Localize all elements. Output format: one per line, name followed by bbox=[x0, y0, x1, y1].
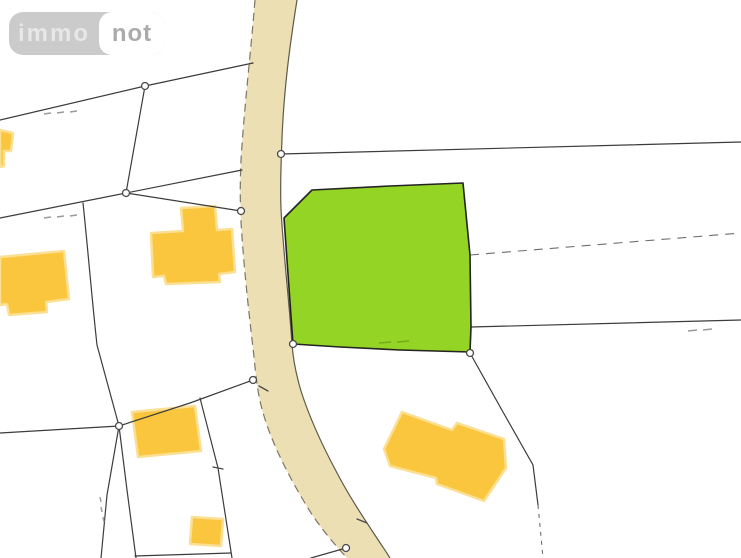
boundary-line bbox=[135, 553, 231, 556]
cadastral-map bbox=[0, 0, 741, 558]
survey-marker bbox=[116, 423, 123, 430]
boundary-line bbox=[0, 63, 253, 120]
boundary-line bbox=[101, 426, 119, 558]
survey-marker bbox=[142, 83, 149, 90]
highlighted-parcel bbox=[284, 183, 471, 352]
logo-immo-text: immo bbox=[9, 12, 99, 55]
logo-not-badge: not bbox=[99, 12, 165, 55]
boundary-line bbox=[126, 170, 242, 193]
building-bottom-right bbox=[384, 412, 506, 501]
survey-marker bbox=[343, 545, 350, 552]
building-left-edge-top bbox=[0, 130, 13, 167]
boundary-line bbox=[0, 426, 119, 433]
building-center-left bbox=[151, 206, 235, 284]
dashed-boundary-line bbox=[470, 233, 741, 255]
immonot-logo: immo not bbox=[9, 12, 165, 55]
survey-marker bbox=[123, 190, 130, 197]
boundary-line bbox=[311, 548, 346, 558]
cadastral-map-view: immo not bbox=[0, 0, 741, 558]
boundary-line bbox=[281, 142, 741, 154]
survey-marker bbox=[278, 151, 285, 158]
survey-marker bbox=[238, 208, 245, 215]
building-left-middle bbox=[0, 251, 69, 315]
dashed-boundaries bbox=[470, 233, 741, 558]
survey-marker bbox=[250, 377, 257, 384]
dashed-boundary-line bbox=[538, 505, 543, 558]
boundary-line bbox=[471, 320, 741, 327]
building-bottom-left-large bbox=[132, 406, 201, 457]
building-bottom-left-small bbox=[190, 517, 223, 546]
boundary-line bbox=[126, 86, 145, 193]
survey-marker bbox=[290, 341, 297, 348]
boundary-line bbox=[119, 426, 136, 558]
survey-marker bbox=[467, 350, 474, 357]
boundary-line bbox=[83, 203, 119, 426]
